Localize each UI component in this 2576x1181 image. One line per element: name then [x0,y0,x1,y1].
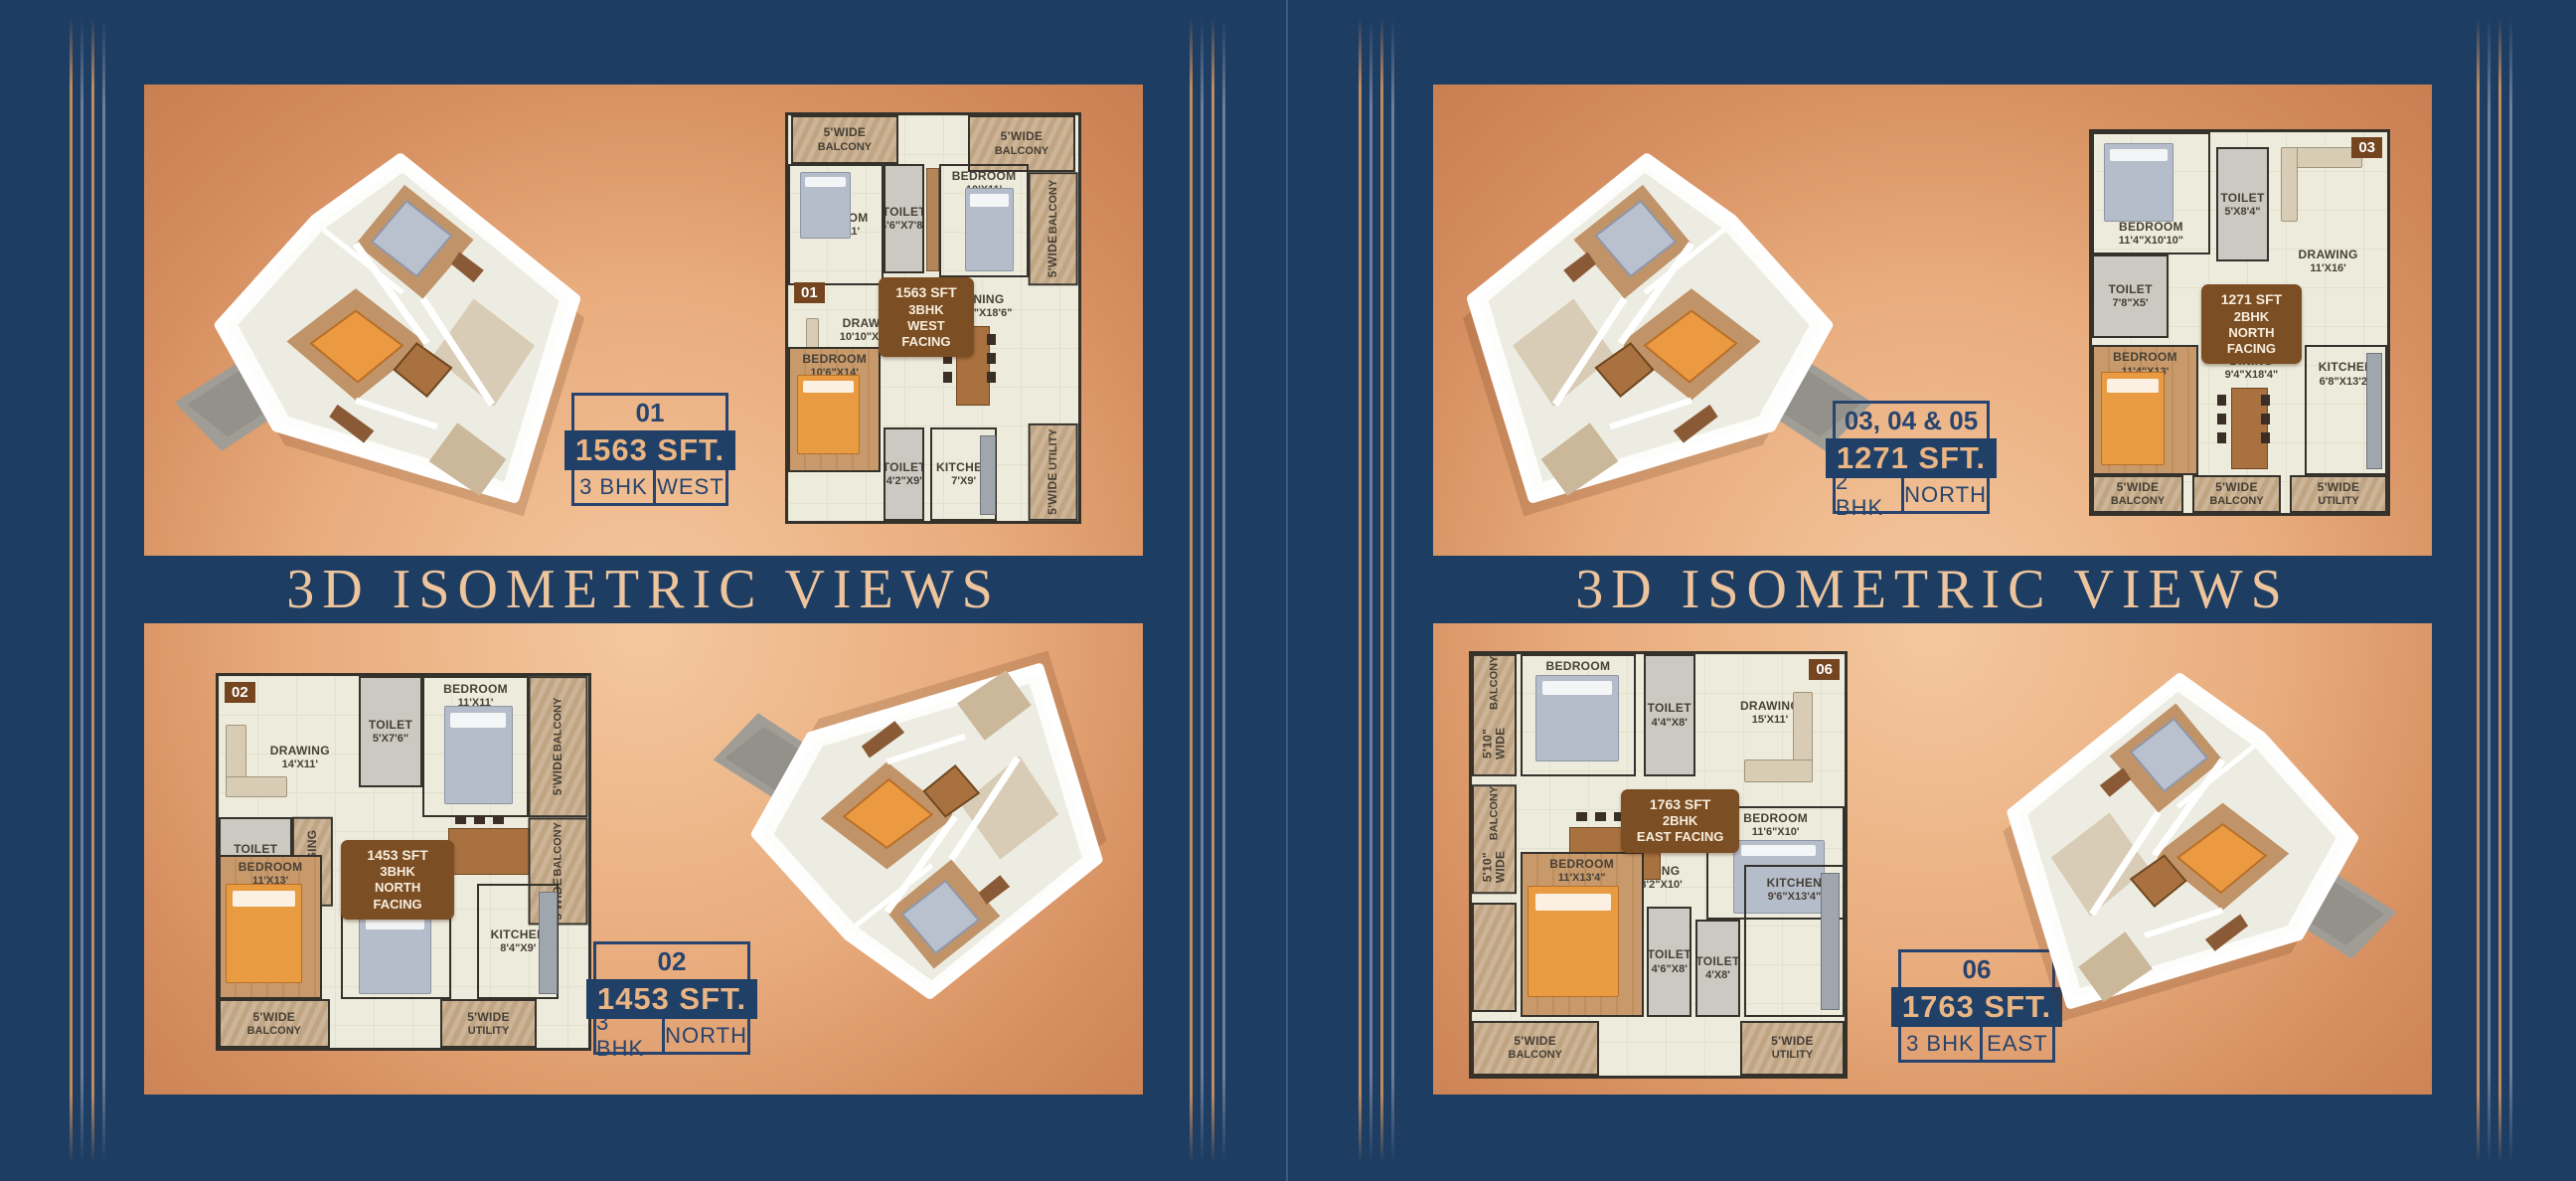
room-balcony: 5'WIDEBALCONY [2092,475,2183,513]
floor-plan-unit-03: 03 BEDROOM11'4"X10'10" TOILET5'X8'4" DRA… [2089,129,2390,516]
room-toilet: TOILET4'X8' [1695,920,1740,1017]
plan-badge: 1453 SFT 3BHK NORTH FACING [341,840,455,920]
unit-bhk: 3 BHK [574,470,656,503]
room-toilet: TOILET5'X7'6" [359,676,421,787]
furniture-dining-table [2231,388,2269,469]
furniture-chairs [1576,812,1587,821]
title-band: 3D ISOMETRIC VIEWS [144,556,1143,623]
brochure-page: 01 5'WIDEBALCONY 5'WIDEBALCONY BEDROOM10… [0,0,2576,1181]
furniture-bed [1528,886,1619,997]
unit-info-03-04-05: 03, 04 & 05 1271 SFT. 2 BHK NORTH [1833,401,1990,514]
decorative-lines-center-left [1190,18,1225,1163]
room-drawing: DRAWING11'X16' [2275,239,2381,284]
furniture-bed [359,911,431,994]
decorative-lines-right [2477,18,2512,1163]
furniture-bed [965,188,1014,271]
unit-bhk: 3 BHK [1901,1027,1983,1060]
floor-plan-unit-02: 02 DRAWING14'X11' TOILET5'X7'6" BEDROOM1… [216,673,591,1051]
room-toilet: TOILET4'6"X8' [1647,907,1691,1016]
panel-title: 3D ISOMETRIC VIEWS [286,558,1001,621]
room-balcony: 5'WIDEBALCONY [1472,1021,1599,1076]
room-drawing: DRAWING14'X11' [248,736,352,780]
room-drawing: DRAWING15'X11' [1703,688,1838,739]
room-balcony: 5'WIDEBALCONY [529,676,588,817]
furniture-bed [2101,372,2165,465]
furniture-sofa [2281,147,2298,222]
plan-number-chip: 06 [1809,659,1840,680]
unit-facing: WEST [656,470,725,503]
unit-area: 1563 SFT. [564,430,735,470]
furniture-wardrobe [926,168,940,271]
room-balcony: 5'WIDEBALCONY [791,115,898,164]
panel-right: 03 BEDROOM11'4"X10'10" TOILET5'X8'4" DRA… [1433,84,2432,1095]
furniture-bed [797,375,860,454]
unit-number: 01 [571,393,728,430]
unit-bhk: 2 BHK [1836,478,1904,511]
plan-number-chip: 01 [794,282,825,303]
furniture-bed [800,172,852,239]
room-balcony: 5'WIDEBALCONY [2192,475,2281,513]
furniture-sofa [226,776,287,797]
plan-badge: 1763 SFT 2BHK EAST FACING [1621,789,1739,853]
decorative-lines-center-right [1359,18,1394,1163]
furniture-chairs [455,815,466,824]
furniture-counter [1821,873,1840,1010]
unit-number: 03, 04 & 05 [1833,401,1990,438]
furniture-counter [539,892,558,994]
furniture-bed [226,884,301,982]
furniture-counter [2366,353,2381,469]
decorative-lines-left [70,18,105,1163]
room-utility: 5'WIDEUTILITY [440,999,537,1048]
room-toilet: TOILET7'8"X5' [2092,254,2169,338]
furniture-chairs [2217,395,2226,406]
room-balcony: 5'WIDEBALCONY [219,999,330,1048]
panel-title: 3D ISOMETRIC VIEWS [1575,558,2290,621]
room-balcony: 5'WIDEBALCONY [1029,172,1078,285]
room-toilet: TOILET4'6"X7'8" [884,164,924,273]
furniture-dining-table [448,828,539,875]
plan-badge: 1271 SFT 2BHK NORTH FACING [2201,284,2302,364]
isometric-view-unit-06 [1975,621,2424,1051]
room-utility: 5'WIDEUTILITY [2290,475,2387,513]
plan-badge: 1563 SFT 3BHK WEST FACING [879,277,975,357]
plan-number-chip: 03 [2351,137,2382,158]
furniture-counter [980,435,997,515]
furniture-bed [1535,675,1620,761]
furniture-bed [2104,143,2173,222]
floor-plan-unit-01: 01 5'WIDEBALCONY 5'WIDEBALCONY BEDROOM10… [785,112,1081,524]
plan-number-chip: 02 [225,682,255,703]
room-kitchen [1740,814,1845,865]
room-utility: 5'WIDEUTILITY [1029,423,1078,521]
unit-facing: NORTH [1904,478,1987,511]
room-balcony: 5'10" WIDEBALCONY [1472,784,1517,894]
isometric-view-unit-02 [686,621,1135,1051]
unit-area: 1271 SFT. [1826,438,1997,478]
room-balcony: 5'10" WIDEBALCONY [1472,654,1517,776]
isometric-view-unit-01 [154,99,606,547]
title-band: 3D ISOMETRIC VIEWS [1433,556,2432,623]
unit-bhk: 3 BHK [596,1019,665,1052]
room-toilet: TOILET4'4"X8' [1644,654,1696,776]
room-utility: 5'WIDEUTILITY [1740,1021,1845,1076]
panel-left: 01 5'WIDEBALCONY 5'WIDEBALCONY BEDROOM10… [144,84,1143,1095]
center-seam-line [1286,0,1288,1181]
room-balcony [1472,903,1517,1012]
furniture-sofa [1744,759,1814,782]
isometric-view-unit-03 [1441,99,1893,547]
unit-info-01: 01 1563 SFT. 3 BHK WEST [571,393,728,506]
room-toilet: TOILET4'2"X9' [884,427,924,521]
room-toilet: TOILET5'X8'4" [2216,147,2269,261]
furniture-bed [444,706,513,804]
floor-plan-unit-06: 06 5'10" WIDEBALCONY 5'10" WIDEBALCONY B… [1469,651,1848,1079]
